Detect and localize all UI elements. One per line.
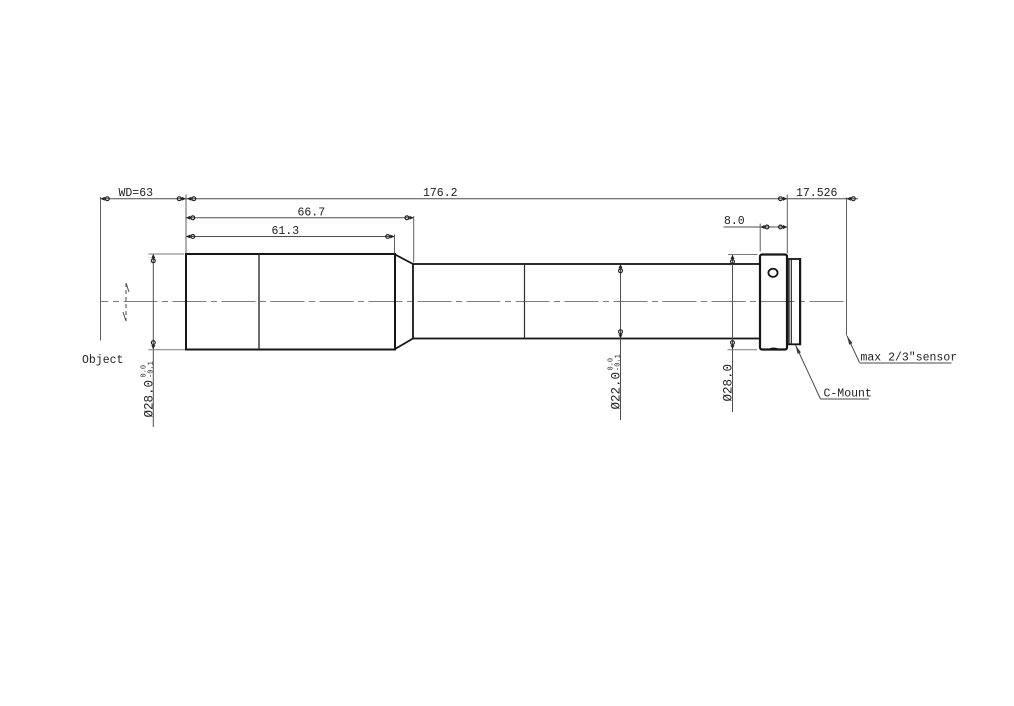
svg-text:Ø28.0: Ø28.0 [722, 364, 736, 402]
svg-text:Ø22.0: Ø22.0 [610, 372, 624, 410]
svg-text:Object: Object [82, 354, 123, 367]
svg-text:C-Mount: C-Mount [824, 388, 872, 401]
svg-text:-0.1: -0.1 [615, 354, 623, 371]
svg-text:max 2/3″sensor: max 2/3″sensor [861, 352, 958, 365]
svg-text:Ø28.0: Ø28.0 [143, 380, 157, 418]
svg-text:8.0: 8.0 [724, 215, 745, 228]
svg-text:66.7: 66.7 [298, 206, 326, 219]
svg-text:61.3: 61.3 [272, 225, 300, 238]
svg-text:WD=63: WD=63 [119, 187, 154, 200]
svg-text:176.2: 176.2 [423, 187, 458, 200]
svg-text:17.526: 17.526 [796, 187, 838, 200]
svg-text:-0.1: -0.1 [148, 361, 156, 378]
